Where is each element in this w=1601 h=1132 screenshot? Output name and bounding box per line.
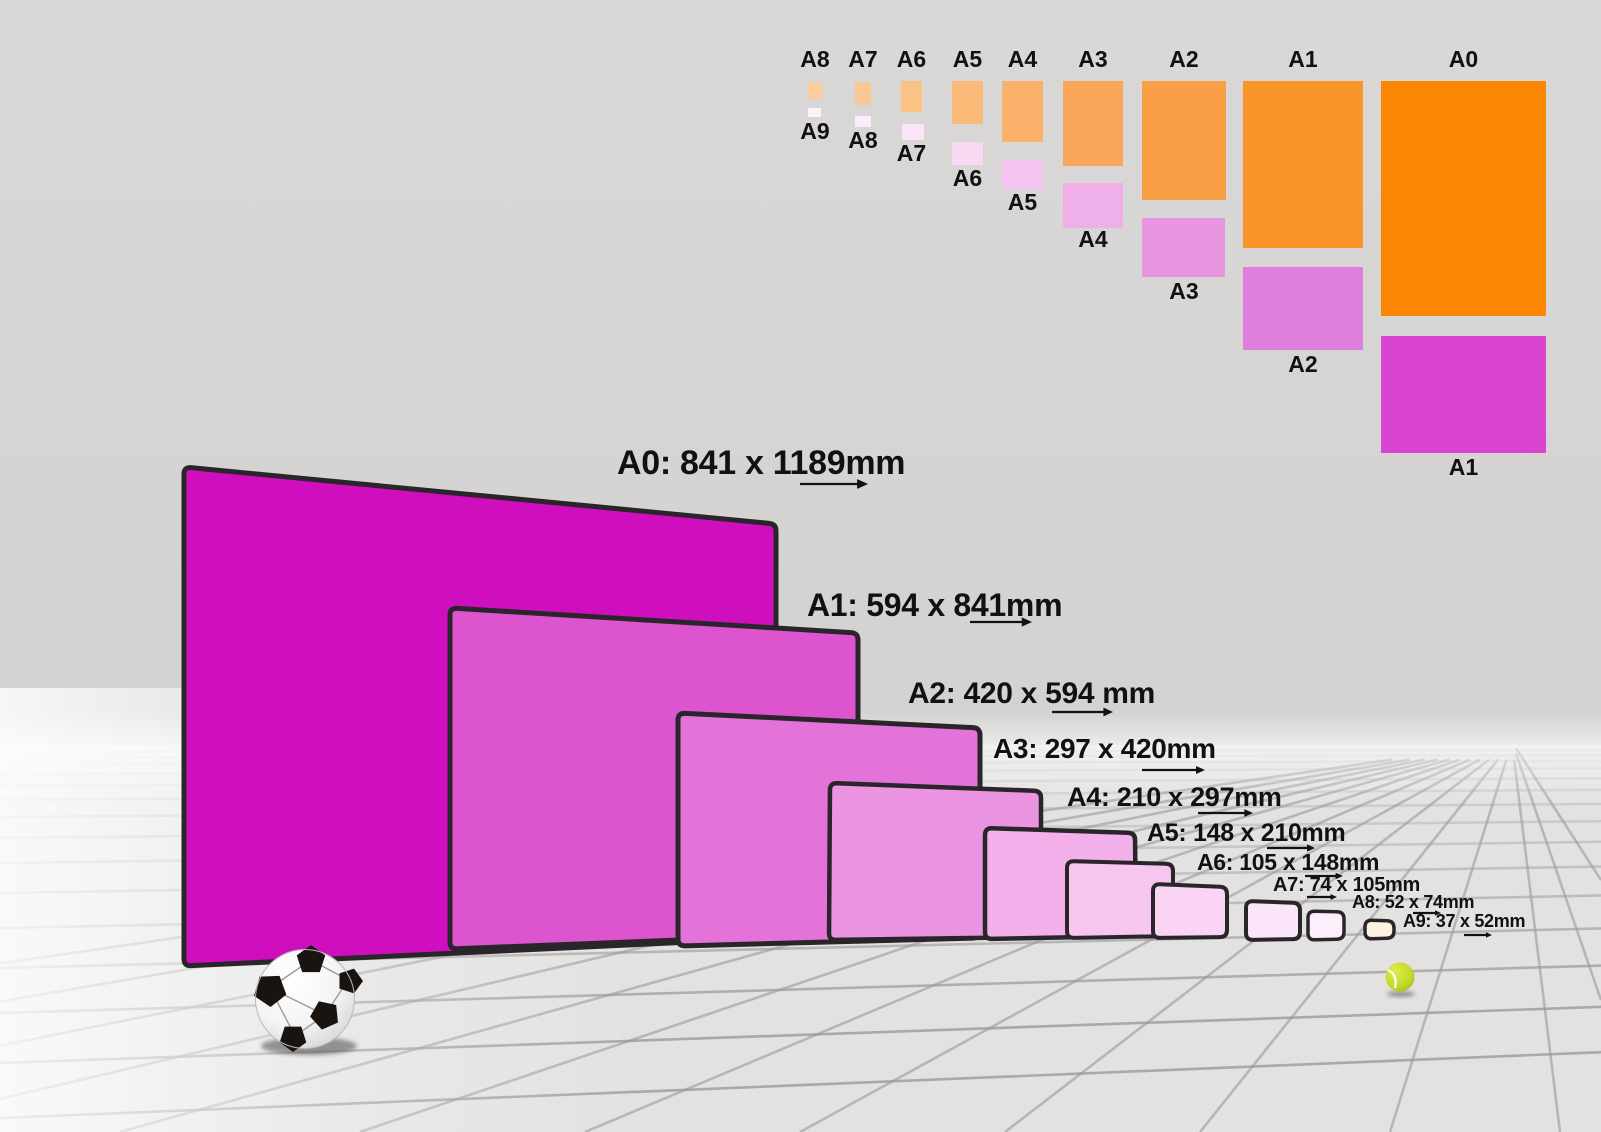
chart-label-a3: A3 bbox=[1078, 48, 1107, 71]
chart-label-a5: A5 bbox=[953, 48, 982, 71]
chart-label-half-a1: A1 bbox=[1449, 456, 1478, 479]
chart-label-a6: A6 bbox=[897, 48, 926, 71]
sheet-label-a8: A8: 52 x 74mm bbox=[1352, 893, 1474, 911]
sheet-label-a0: A0: 841 x 1189mm bbox=[617, 446, 905, 480]
chart-label-half-a8: A8 bbox=[848, 129, 877, 152]
chart-label-half-a2: A2 bbox=[1288, 353, 1317, 376]
chart-label-a1: A1 bbox=[1288, 48, 1317, 71]
labels-layer: A0: 841 x 1189mmA1: 594 x 841mmA2: 420 x… bbox=[0, 0, 1601, 1132]
sheet-label-a6: A6: 105 x 148mm bbox=[1197, 851, 1379, 874]
paper-sizes-illustration: A0: 841 x 1189mmA1: 594 x 841mmA2: 420 x… bbox=[0, 0, 1601, 1132]
chart-label-a8: A8 bbox=[800, 48, 829, 71]
chart-label-half-a9: A9 bbox=[800, 120, 829, 143]
chart-label-a7: A7 bbox=[848, 48, 877, 71]
sheet-label-a9: A9: 37 x 52mm bbox=[1403, 912, 1525, 930]
chart-label-a2: A2 bbox=[1169, 48, 1198, 71]
sheet-label-a3: A3: 297 x 420mm bbox=[993, 735, 1216, 763]
chart-label-half-a3: A3 bbox=[1169, 280, 1198, 303]
chart-label-half-a4: A4 bbox=[1078, 228, 1107, 251]
chart-label-half-a6: A6 bbox=[953, 167, 982, 190]
sheet-label-a1: A1: 594 x 841mm bbox=[807, 589, 1062, 621]
chart-label-a0: A0 bbox=[1449, 48, 1478, 71]
sheet-label-a2: A2: 420 x 594 mm bbox=[908, 679, 1155, 709]
chart-label-a4: A4 bbox=[1008, 48, 1037, 71]
chart-label-half-a7: A7 bbox=[897, 142, 926, 165]
chart-label-half-a5: A5 bbox=[1008, 191, 1037, 214]
sheet-label-a5: A5: 148 x 210mm bbox=[1147, 821, 1345, 846]
sheet-label-a4: A4: 210 x 297mm bbox=[1067, 784, 1282, 811]
